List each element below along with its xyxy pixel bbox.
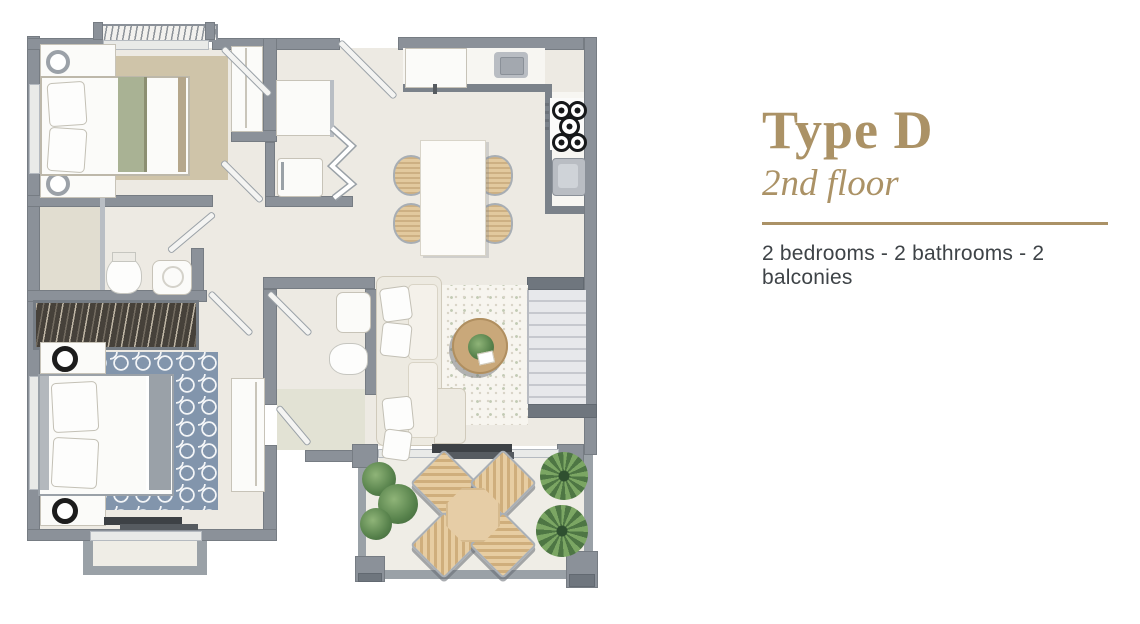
footboard-bed-1 xyxy=(178,77,186,172)
folding-door xyxy=(326,124,358,202)
wall-bathroom-2-top xyxy=(263,277,375,289)
closet-door-split xyxy=(245,48,247,128)
fridge xyxy=(405,48,467,88)
sink-bathroom-2 xyxy=(336,292,371,333)
cabinet-line xyxy=(255,382,257,486)
railing-bedroom-balcony-bottom xyxy=(83,566,207,575)
info-panel: Type D 2nd floor 2 bedrooms - 2 bathroom… xyxy=(762,100,1140,290)
floor-shower-bathroom-1 xyxy=(40,198,102,290)
pillar-foot-br xyxy=(569,574,595,587)
floor-bedroom-balcony xyxy=(93,541,197,569)
tv-console-bedroom-2-shelf xyxy=(120,524,198,530)
throw-bed-1 xyxy=(118,77,147,172)
wall-bedroom-2-right-upper xyxy=(263,289,277,405)
wall-stairs-bottom xyxy=(527,404,597,418)
shower-entry-bath xyxy=(276,80,332,136)
window-cap-right xyxy=(205,22,215,40)
floor-plan xyxy=(0,0,640,624)
sink-bowl-bathroom-1 xyxy=(162,266,184,288)
lamp-bedroom-2-bottom xyxy=(52,498,78,524)
toilet-tank-bathroom-1 xyxy=(112,252,136,262)
pillow-bed-2-b xyxy=(51,437,100,489)
sink-right-basin xyxy=(558,164,578,188)
toilet-bathroom-2 xyxy=(329,343,368,375)
balcony-palm-right-1 xyxy=(540,452,588,500)
page: Type D 2nd floor 2 bedrooms - 2 bathroom… xyxy=(0,0,1140,624)
pillow-bed-1-b xyxy=(47,127,88,174)
window-sill-top xyxy=(103,40,209,50)
footboard-bed-2 xyxy=(146,376,171,490)
stairs xyxy=(527,290,586,404)
window-bedroom-2-bottom xyxy=(90,531,202,541)
balcony-plant-left-3 xyxy=(360,508,392,540)
kitchen-counter-bottom-edge xyxy=(545,206,584,214)
dining-table xyxy=(420,140,486,256)
features-text: 2 bedrooms - 2 bathrooms - 2 balconies xyxy=(762,242,1140,290)
sofa-pillow-c xyxy=(381,396,414,433)
wall-bedroom-2-right-lower xyxy=(263,445,277,541)
sofa-pillow-d xyxy=(381,428,413,462)
shower-glass-bathroom-1 xyxy=(100,198,105,290)
wardrobe-cabinet-bedroom-2 xyxy=(231,378,265,492)
sofa-seat-a xyxy=(408,284,438,360)
window-bedroom-1-left xyxy=(29,84,40,174)
railing-balcony-bottom xyxy=(385,570,570,579)
sofa-pillow-b xyxy=(379,322,412,359)
pillar-foot-bl xyxy=(358,573,382,582)
pillow-bed-1-a xyxy=(47,81,88,128)
floor-label: 2nd floor xyxy=(762,162,1140,206)
unit-type-title: Type D xyxy=(762,100,1140,160)
sofa-pillow-a xyxy=(379,285,413,323)
sofa-chaise xyxy=(434,388,466,444)
lamp-bedroom-2-top xyxy=(52,346,78,372)
sink-basin-top xyxy=(500,57,524,75)
faucet-entry-bath xyxy=(281,162,284,190)
wall-stairs-top xyxy=(527,277,584,290)
pillow-bed-2-a xyxy=(51,381,100,433)
lamp-bedroom-1-top xyxy=(46,50,70,74)
window-cap-left xyxy=(93,22,103,40)
burner-5 xyxy=(568,133,587,152)
fridge-handle xyxy=(433,84,437,94)
balcony-palm-right-2 xyxy=(536,505,588,557)
stove-knobs xyxy=(545,103,549,135)
gold-divider xyxy=(762,222,1108,225)
headboard-bed-2 xyxy=(40,376,49,490)
